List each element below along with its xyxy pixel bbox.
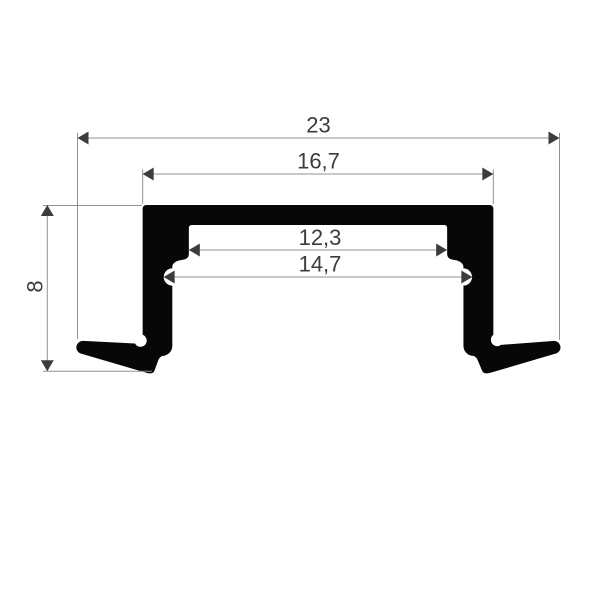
svg-text:16,7: 16,7 — [297, 149, 340, 174]
svg-text:14,7: 14,7 — [299, 252, 342, 277]
svg-text:8: 8 — [23, 280, 48, 292]
svg-text:23: 23 — [306, 113, 330, 138]
svg-text:12,3: 12,3 — [299, 225, 342, 250]
